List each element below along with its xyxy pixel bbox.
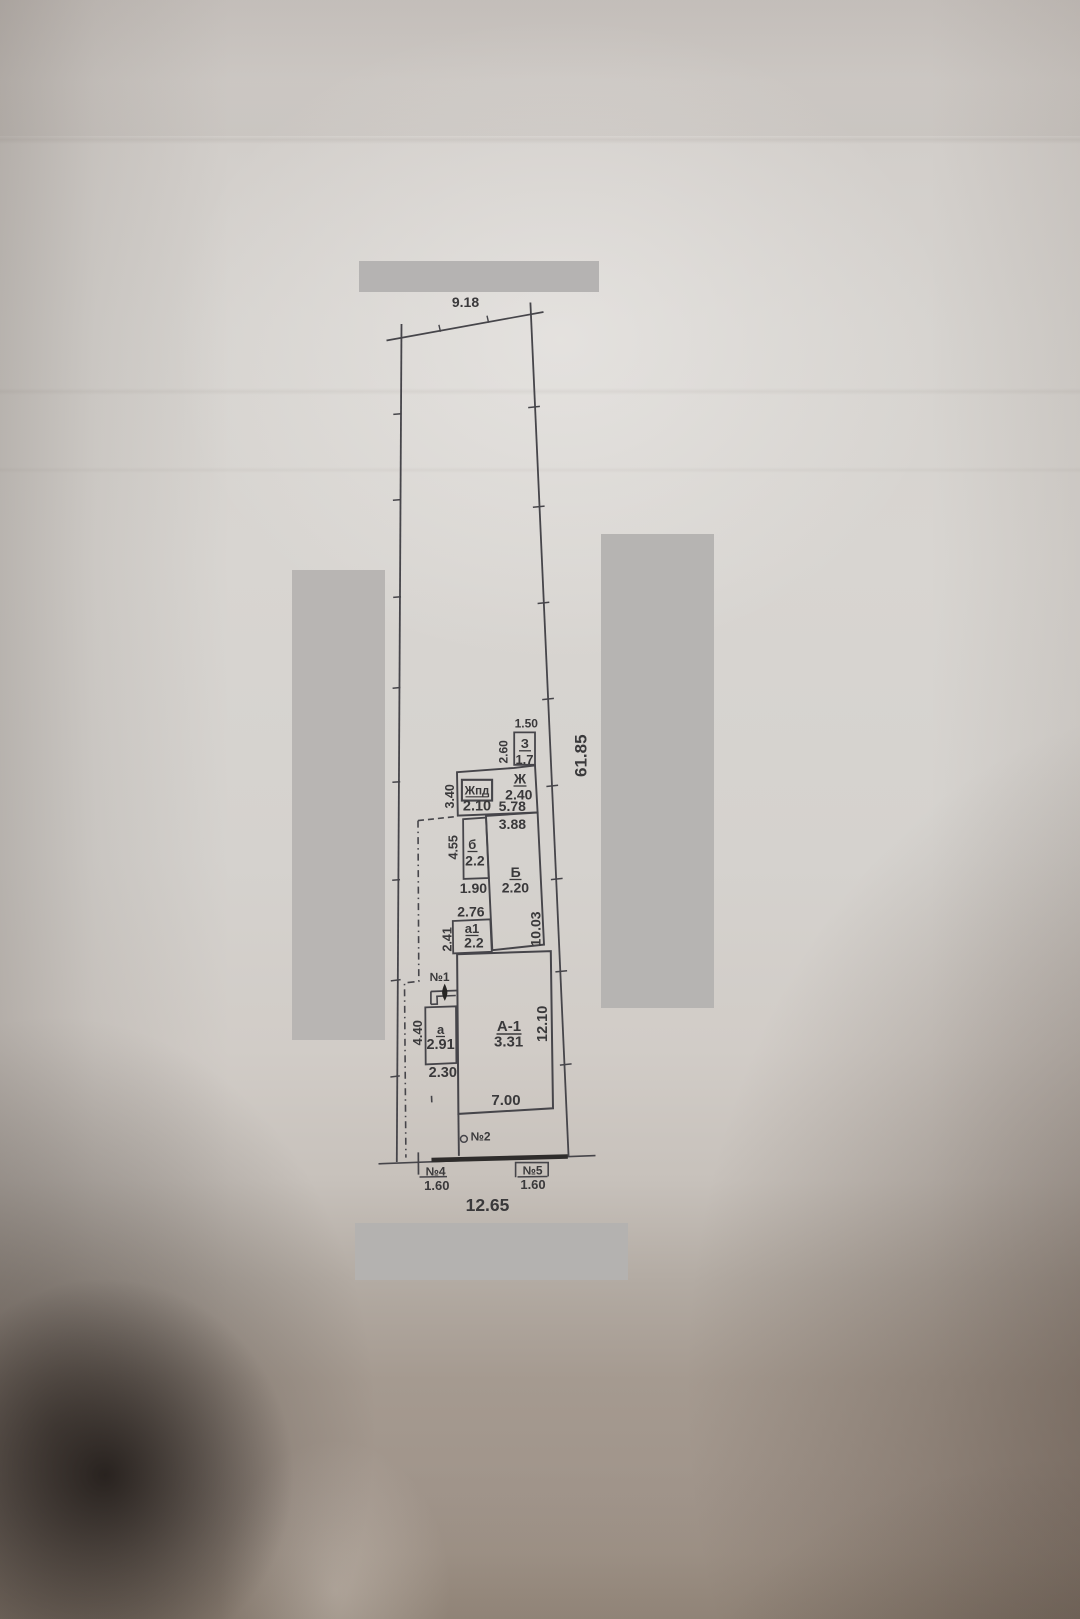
- svg-text:3.40: 3.40: [443, 784, 457, 808]
- svg-text:№1: №1: [429, 970, 449, 984]
- svg-text:2.41: 2.41: [441, 927, 455, 951]
- svg-text:10.03: 10.03: [528, 911, 544, 946]
- svg-text:3.88: 3.88: [499, 816, 526, 832]
- svg-text:2.20: 2.20: [502, 879, 529, 895]
- svg-text:№5: №5: [522, 1163, 542, 1177]
- svg-text:№2: №2: [470, 1130, 490, 1144]
- svg-text:3.31: 3.31: [494, 1034, 523, 1051]
- svg-text:9.18: 9.18: [452, 294, 479, 310]
- svg-text:1.7: 1.7: [515, 752, 533, 767]
- svg-text:5.78: 5.78: [499, 798, 526, 814]
- svg-text:4.55: 4.55: [447, 835, 461, 859]
- svg-text:2.2: 2.2: [465, 852, 485, 868]
- svg-text:2.60: 2.60: [497, 740, 511, 764]
- svg-text:1.60: 1.60: [520, 1177, 545, 1192]
- svg-text:12.65: 12.65: [466, 1195, 510, 1215]
- svg-text:1.50: 1.50: [515, 716, 539, 730]
- svg-text:1.60: 1.60: [424, 1178, 449, 1193]
- svg-text:7.00: 7.00: [491, 1092, 520, 1109]
- svg-text:Б: Б: [511, 864, 521, 880]
- svg-text:2.10: 2.10: [463, 798, 491, 814]
- svg-text:2.91: 2.91: [426, 1037, 454, 1053]
- svg-text:Жпд: Жпд: [464, 786, 490, 798]
- svg-text:а: а: [437, 1022, 445, 1037]
- svg-text:А-1: А-1: [497, 1018, 521, 1035]
- svg-text:1.90: 1.90: [460, 880, 487, 896]
- svg-text:2.76: 2.76: [457, 903, 484, 919]
- svg-text:2.2: 2.2: [464, 934, 484, 950]
- svg-text:12.10: 12.10: [535, 1006, 551, 1042]
- svg-text:4.40: 4.40: [410, 1020, 425, 1045]
- svg-text:З: З: [521, 736, 529, 751]
- svg-text:б: б: [468, 837, 476, 852]
- svg-text:61.85: 61.85: [572, 734, 591, 777]
- svg-text:№4: №4: [425, 1164, 445, 1178]
- svg-text:2.30: 2.30: [429, 1065, 457, 1081]
- svg-text:Ж: Ж: [513, 772, 527, 787]
